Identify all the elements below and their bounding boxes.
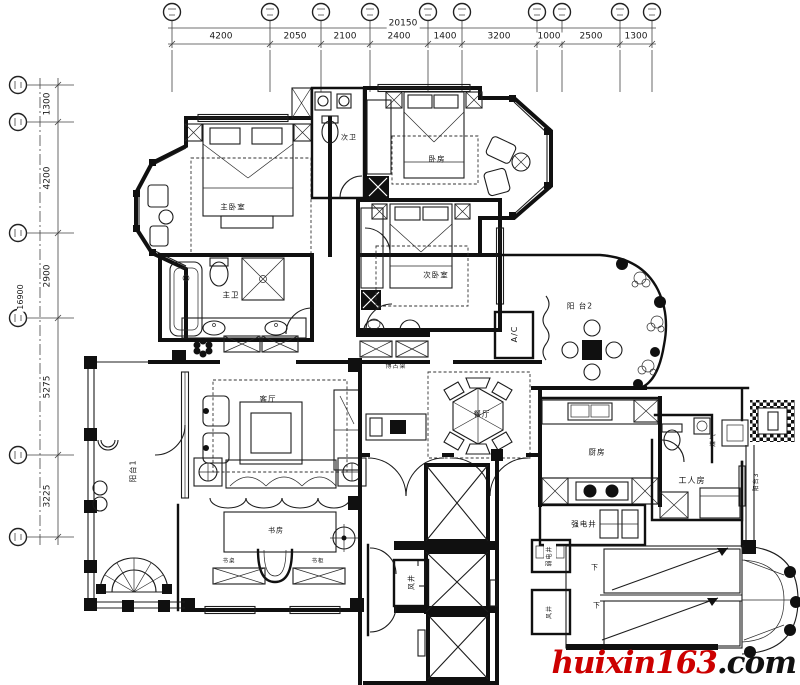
label-air-shaft-1: 风井 — [409, 574, 416, 590]
room-master-bedroom — [133, 88, 330, 338]
display-shelf — [356, 319, 430, 357]
dim-top-3: 2400 — [386, 33, 413, 42]
label-living-room: 客厅 — [260, 395, 277, 403]
dim-top-0: 4200 — [208, 33, 235, 42]
dimension-grid — [10, 4, 661, 546]
dim-top-1: 2050 — [282, 33, 309, 42]
label-balcony-2: 阳 台2 — [567, 302, 593, 310]
label-ac-closet: A/C — [511, 326, 519, 343]
dim-top-7: 2500 — [578, 33, 605, 42]
label-weak-power-shaft: 弱电井 — [547, 545, 553, 566]
dim-left-0: 1300 — [44, 91, 53, 118]
label-stairs-down-2: 下 — [593, 603, 601, 610]
label-master-bath: 主卫 — [223, 291, 240, 299]
balcony-1 — [84, 356, 185, 612]
label-kitchen: 厨房 — [589, 448, 606, 456]
balcony-2 — [500, 255, 666, 389]
curved-bay — [742, 542, 800, 658]
grid-bubbles-top — [164, 4, 661, 93]
room-secondary-bath — [312, 88, 364, 198]
balcony-3 — [742, 400, 795, 554]
label-secondary-bath: 次卫 — [341, 135, 357, 142]
dim-top-4: 1400 — [432, 33, 459, 42]
watermark-suffix: .com — [717, 645, 796, 681]
label-maid-room: 工人房 — [679, 477, 706, 485]
arch-window — [96, 558, 172, 594]
patio-table — [562, 320, 622, 380]
label-air-shaft-2: 风井 — [547, 605, 553, 619]
dim-top-2: 2100 — [332, 33, 359, 42]
label-master-bedroom: 主卧室 — [220, 203, 246, 211]
dim-left-1: 4200 — [44, 165, 53, 192]
watermark-brand: huixin163 — [551, 645, 716, 681]
label-gas-meter: 煤气 — [711, 433, 717, 447]
dim-left-3: 5275 — [44, 374, 53, 401]
ac-closet — [495, 255, 533, 358]
stairwell — [566, 462, 800, 658]
label-bookcase: 书柜 — [311, 559, 324, 565]
label-bedroom: 卧房 — [429, 155, 446, 163]
label-second-bedroom: 次卧室 — [423, 271, 449, 279]
dim-left-4: 3225 — [44, 483, 53, 510]
dim-left-total: 16900 — [17, 282, 25, 311]
lobby-doors — [360, 449, 540, 496]
dim-top-8: 1300 — [623, 33, 650, 42]
label-balcony-1: 阳台1 — [129, 460, 137, 483]
watermark: huixin163.com — [551, 648, 796, 679]
label-stairs-down-1: 下 — [591, 565, 599, 572]
label-balcony-3: 阳台3 — [754, 473, 760, 492]
label-dining-room: 餐厅 — [474, 410, 491, 418]
dim-top-5: 3200 — [486, 33, 513, 42]
dim-left-2: 2900 — [44, 263, 53, 290]
label-study-desk: 书桌 — [222, 559, 235, 565]
room-living — [155, 372, 426, 510]
label-study: 书房 — [268, 528, 284, 535]
plant-icons — [632, 272, 664, 375]
label-display-shelf: 博古架 — [385, 364, 406, 370]
floorplan-drawing — [0, 0, 800, 685]
dim-top-total: 20150 — [387, 20, 420, 29]
dim-top-6: 1000 — [536, 33, 563, 42]
label-strong-power-shaft: 强电井 — [571, 520, 597, 528]
room-bedroom — [358, 85, 551, 256]
